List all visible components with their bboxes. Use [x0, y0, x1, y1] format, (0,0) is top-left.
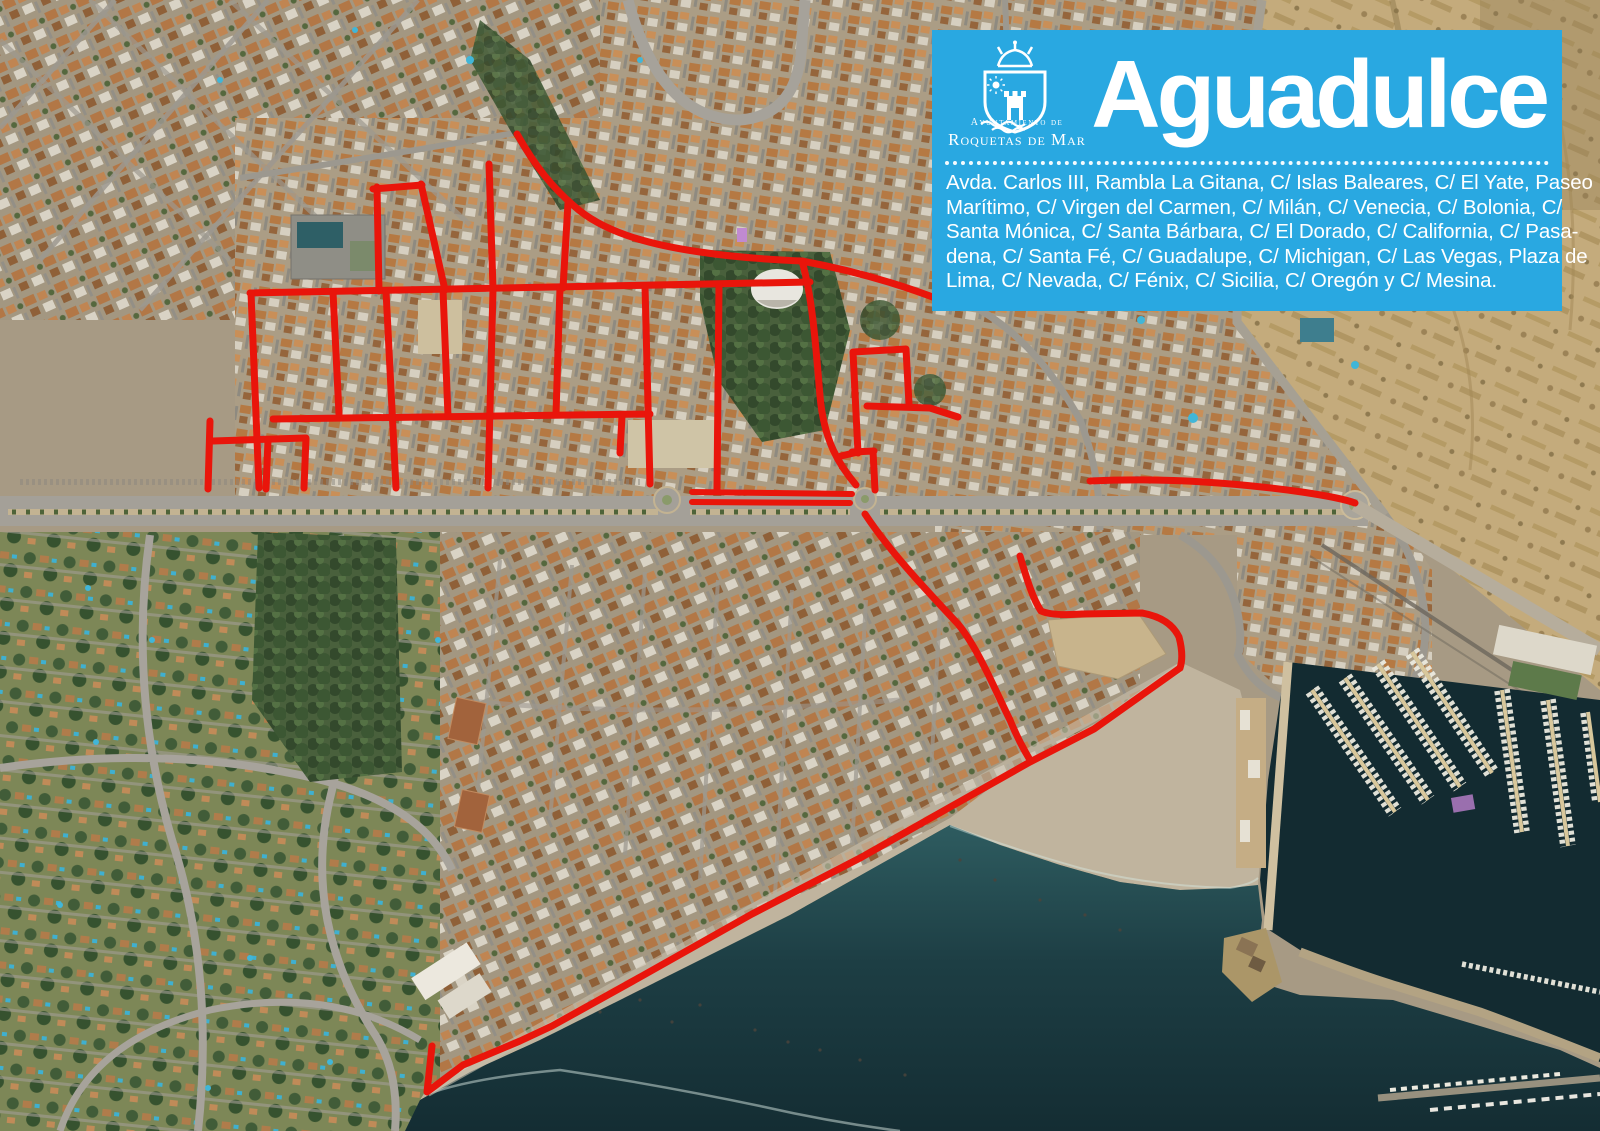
route-avenue-west-a — [692, 492, 852, 494]
org-line-2: Roquetas de Mar — [932, 131, 1102, 148]
district-title: Aguadulce — [1091, 30, 1546, 160]
street-list-line: dena, C/ Santa Fé, C/ Guadalupe, C/ Mich… — [946, 245, 1552, 270]
padel-courts — [1300, 318, 1334, 342]
street-list-line: Marítimo, C/ Virgen del Carmen, C/ Milán… — [946, 196, 1552, 221]
municipality-name: Ayuntamiento de Roquetas de Mar — [932, 118, 1102, 148]
street-list-line: Lima, C/ Nevada, C/ Fénix, C/ Sicilia, C… — [946, 269, 1552, 294]
route-avenue-west-b — [692, 502, 850, 503]
poster: Ayuntamiento de Roquetas de Mar Aguadulc… — [0, 0, 1600, 1131]
org-line-1: Ayuntamiento de — [932, 118, 1102, 128]
street-list-line: Avda. Carlos III, Rambla La Gitana, C/ I… — [946, 171, 1552, 196]
street-list: Avda. Carlos III, Rambla La Gitana, C/ I… — [946, 171, 1552, 294]
route-grid-horizontal-2 — [273, 414, 650, 419]
dotted-separator — [945, 161, 1549, 165]
info-panel: Ayuntamiento de Roquetas de Mar Aguadulc… — [932, 30, 1562, 311]
school-yard — [628, 420, 720, 468]
town-plaza — [418, 300, 462, 354]
street-list-line: Santa Mónica, C/ Santa Bárbara, C/ El Do… — [946, 220, 1552, 245]
